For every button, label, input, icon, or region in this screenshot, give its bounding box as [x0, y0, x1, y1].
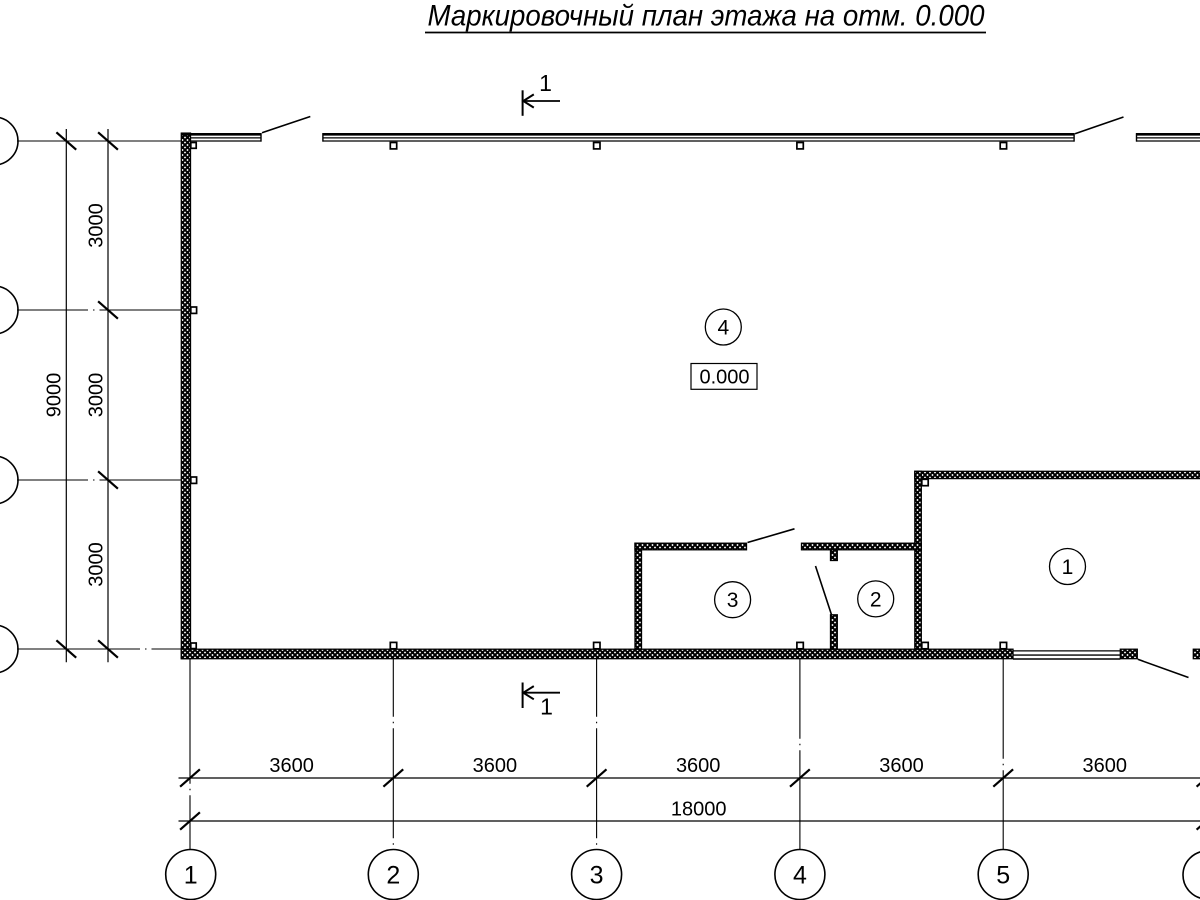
- svg-text:5: 5: [996, 862, 1010, 890]
- svg-text:2: 2: [386, 862, 400, 890]
- svg-text:3600: 3600: [879, 755, 924, 777]
- svg-text:3: 3: [727, 589, 739, 612]
- svg-text:18000: 18000: [671, 799, 727, 821]
- svg-text:Маркировочный план этажа на от: Маркировочный план этажа на отм. 0.000: [428, 0, 985, 33]
- svg-text:3000: 3000: [85, 203, 107, 248]
- svg-text:4: 4: [793, 862, 807, 890]
- svg-text:3600: 3600: [473, 755, 518, 777]
- svg-text:2: 2: [870, 588, 882, 611]
- svg-text:0.000: 0.000: [699, 367, 749, 389]
- svg-text:9000: 9000: [44, 373, 66, 418]
- svg-text:1: 1: [1062, 556, 1074, 579]
- svg-text:3600: 3600: [1083, 755, 1128, 777]
- svg-text:3600: 3600: [269, 755, 314, 777]
- svg-text:1: 1: [184, 862, 198, 890]
- svg-text:4: 4: [717, 317, 729, 340]
- svg-text:3000: 3000: [85, 373, 107, 418]
- svg-text:3: 3: [590, 862, 604, 890]
- svg-text:3000: 3000: [85, 542, 107, 587]
- svg-text:1: 1: [539, 70, 552, 96]
- svg-text:3600: 3600: [676, 755, 721, 777]
- svg-text:1: 1: [540, 694, 553, 720]
